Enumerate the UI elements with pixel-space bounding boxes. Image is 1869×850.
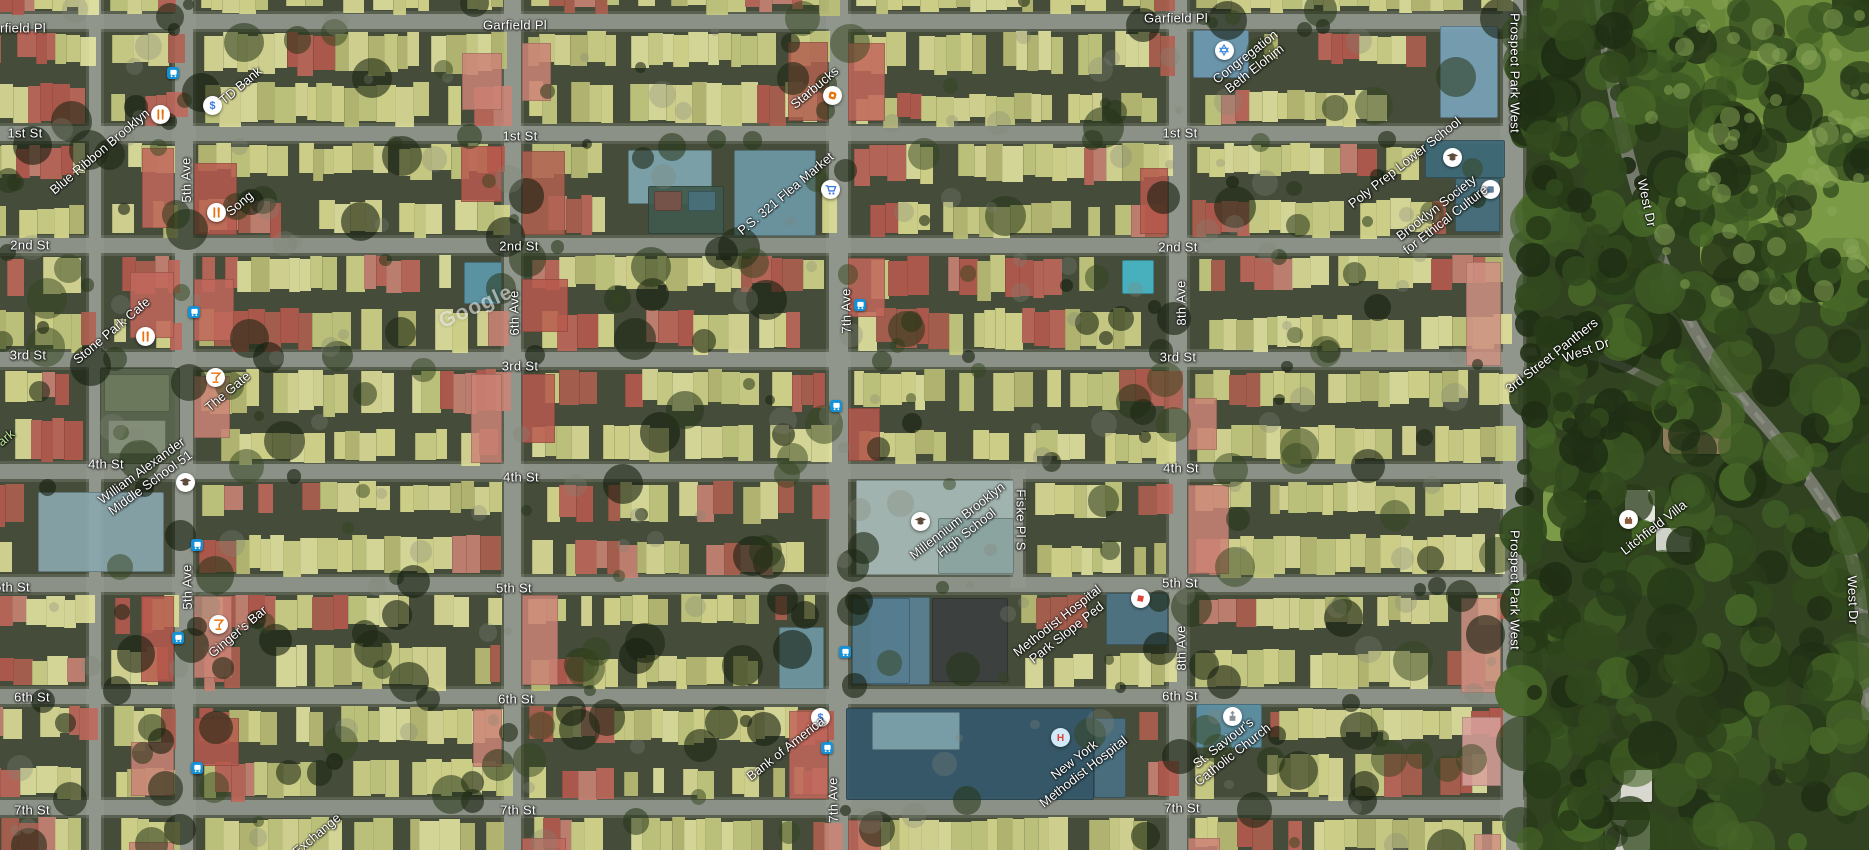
poi-label-line: Bank of America bbox=[744, 714, 828, 784]
street-label-5th-ave: 5th Ave bbox=[179, 564, 195, 609]
street-label-7th-st: 7th St bbox=[500, 803, 536, 818]
school-icon[interactable] bbox=[1443, 148, 1462, 167]
poi-label-bank-of-america[interactable]: Bank of America bbox=[744, 714, 828, 784]
street-label-1st-st: 1st St bbox=[1162, 126, 1197, 141]
transit-stop-icon[interactable] bbox=[821, 742, 833, 754]
transit-stop-icon[interactable] bbox=[854, 299, 866, 311]
poi-label-line: Park bbox=[0, 427, 18, 455]
street-label-garfield-pl: Garfield Pl bbox=[1144, 11, 1208, 26]
poi-label-line: Exchange bbox=[290, 811, 344, 850]
poi-label-blue-ribbon-brooklyn[interactable]: Blue Ribbon Brooklyn bbox=[47, 106, 152, 198]
poi-label-line: Blue Ribbon Brooklyn bbox=[47, 106, 152, 198]
street-label-7th-ave: 7th Ave bbox=[838, 288, 854, 333]
street-label-1st-st: 1st St bbox=[502, 129, 537, 144]
restaurant-icon[interactable] bbox=[151, 105, 170, 124]
street-label-8th-ave: 8th Ave bbox=[1173, 625, 1189, 670]
poi-label-park-name[interactable]: Park bbox=[0, 427, 18, 455]
street-label-6th-st: 6th St bbox=[498, 692, 534, 707]
street-label-fiske-pl-s: Fiske Pl S bbox=[1014, 489, 1029, 551]
school-icon[interactable] bbox=[176, 473, 195, 492]
poi-label-ethical-culture[interactable]: Brooklyn Societyfor Ethical Culture bbox=[1391, 171, 1490, 258]
poi-label-td-bank[interactable]: TD Bank bbox=[217, 64, 265, 108]
street-label-garfield-pl: Garfield Pl bbox=[0, 21, 46, 36]
poi-label-ny-methodist-hospital[interactable]: New YorkMethodist Hospital bbox=[1028, 722, 1130, 811]
street-label-west-dr: West Dr bbox=[1635, 178, 1660, 229]
street-label-prospect-park-west: Prospect Park West bbox=[1508, 530, 1523, 650]
street-label-west-dr: West Dr bbox=[1845, 575, 1862, 624]
street-label-3rd-st: 3rd St bbox=[10, 348, 46, 363]
restaurant-icon[interactable] bbox=[207, 203, 226, 222]
hospital-icon[interactable]: H bbox=[1051, 728, 1070, 747]
poi-label-line: Song bbox=[224, 189, 257, 220]
poi-label-line: TD Bank bbox=[217, 64, 265, 108]
transit-stop-icon[interactable] bbox=[191, 762, 203, 774]
street-label-7th-st: 7th St bbox=[1164, 801, 1200, 816]
medsquare-icon[interactable] bbox=[1131, 589, 1150, 608]
transit-stop-icon[interactable] bbox=[839, 646, 851, 658]
poi-label-methodist-hospital-ped[interactable]: Methodist HospitalPark Slope Ped bbox=[1011, 583, 1113, 672]
street-label-2nd-st: 2nd St bbox=[499, 239, 538, 254]
street-label-2nd-st: 2nd St bbox=[1158, 240, 1197, 255]
street-label-6th-st: 6th St bbox=[14, 690, 50, 705]
street-label-5th-st: 5th St bbox=[1162, 576, 1198, 591]
street-label-4th-st: 4th St bbox=[503, 470, 539, 485]
street-label-3rd-st: 3rd St bbox=[502, 359, 538, 374]
street-label-2nd-st: 2nd St bbox=[10, 238, 49, 253]
street-label-7th-ave: 7th Ave bbox=[825, 777, 841, 822]
restaurant-icon[interactable] bbox=[136, 327, 155, 346]
castle-icon[interactable] bbox=[1619, 510, 1638, 529]
street-label-5th-st: 5th St bbox=[496, 581, 532, 596]
poi-label-song[interactable]: Song bbox=[224, 189, 257, 220]
transit-stop-icon[interactable] bbox=[830, 400, 842, 412]
transit-stop-icon[interactable] bbox=[191, 539, 203, 551]
svg-text:$: $ bbox=[209, 100, 215, 112]
street-label-1st-st: 1st St bbox=[7, 126, 42, 141]
street-label-4th-st: 4th St bbox=[1163, 461, 1199, 476]
cocktail-icon[interactable] bbox=[206, 368, 225, 387]
cart-icon[interactable] bbox=[821, 180, 840, 199]
svg-text:H: H bbox=[1056, 733, 1063, 744]
map-labels: Garfield PlGarfield PlGarfield Pl1st St1… bbox=[0, 0, 1869, 850]
street-label-prospect-park-west: Prospect Park West bbox=[1508, 13, 1523, 133]
transit-stop-icon[interactable] bbox=[172, 632, 184, 644]
street-label-garfield-pl: Garfield Pl bbox=[483, 18, 547, 33]
street-label-8th-ave: 8th Ave bbox=[1173, 280, 1189, 325]
transit-stop-icon[interactable] bbox=[167, 67, 179, 79]
street-label-5th-st: 5th St bbox=[0, 580, 30, 595]
street-label-4th-st: 4th St bbox=[88, 457, 124, 472]
school-icon[interactable] bbox=[911, 512, 930, 531]
street-label-7th-st: 7th St bbox=[14, 803, 50, 818]
street-label-3rd-st: 3rd St bbox=[1160, 350, 1196, 365]
street-label-6th-st: 6th St bbox=[1162, 689, 1198, 704]
street-label-5th-ave: 5th Ave bbox=[178, 157, 194, 202]
poi-label-exchange[interactable]: Exchange bbox=[290, 811, 344, 850]
map-canvas[interactable]: Garfield PlGarfield PlGarfield Pl1st St1… bbox=[0, 0, 1869, 850]
transit-stop-icon[interactable] bbox=[188, 306, 200, 318]
poi-label-congregation-beth-elohim[interactable]: CongregationBeth Elohim bbox=[1210, 28, 1289, 99]
